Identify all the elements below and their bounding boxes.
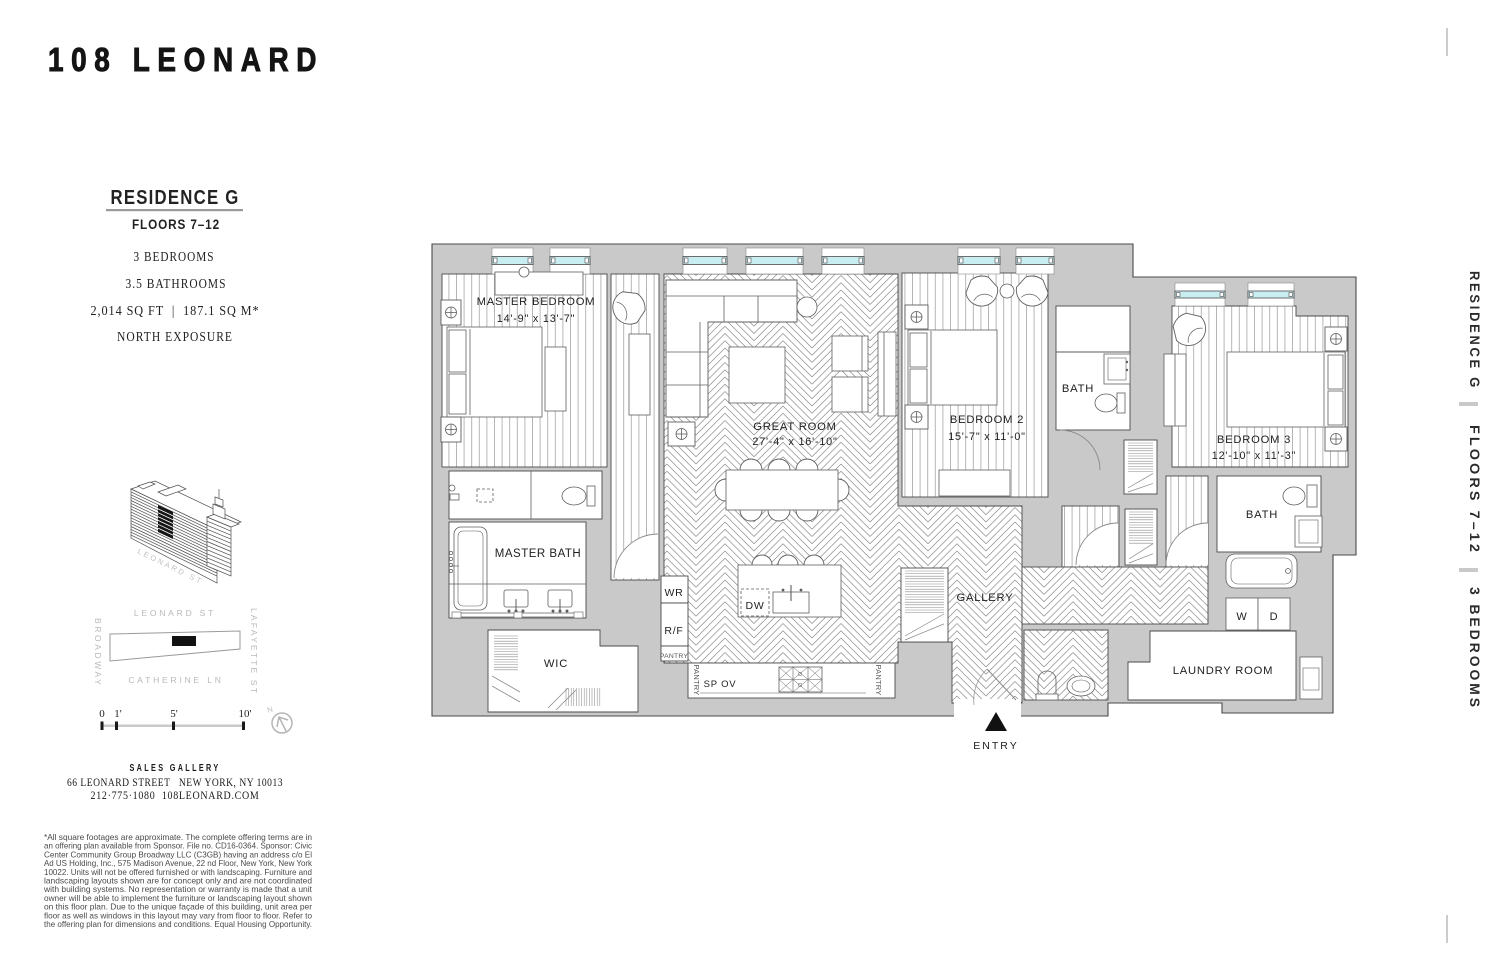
svg-text:R/F: R/F: [664, 625, 683, 637]
svg-text:NORTH EXPOSURE: NORTH EXPOSURE: [117, 329, 233, 344]
svg-text:SALES GALLERY: SALES GALLERY: [130, 762, 221, 774]
svg-text:D: D: [1270, 611, 1279, 623]
svg-text:DW: DW: [745, 600, 764, 612]
svg-text:LAUNDRY ROOM: LAUNDRY ROOM: [1173, 665, 1274, 677]
svg-text:15'-7" x 11'-0": 15'-7" x 11'-0": [948, 431, 1026, 443]
svg-text:RESIDENCE G: RESIDENCE G: [111, 186, 240, 209]
svg-text:ENTRY: ENTRY: [973, 740, 1018, 752]
svg-text:BATH: BATH: [1246, 509, 1278, 521]
svg-text:GREAT ROOM: GREAT ROOM: [753, 421, 836, 433]
svg-text:RESIDENCE G: RESIDENCE G: [1467, 271, 1483, 390]
svg-text:BROADWAY: BROADWAY: [93, 618, 103, 687]
svg-text:0: 0: [99, 708, 105, 720]
svg-text:12'-10" x 11'-3": 12'-10" x 11'-3": [1212, 450, 1296, 462]
svg-text:LAFAYETTE ST: LAFAYETTE ST: [249, 608, 259, 695]
svg-text:SP OV: SP OV: [704, 679, 737, 690]
svg-text:BEDROOM 3: BEDROOM 3: [1217, 434, 1291, 446]
svg-text:LEONARD ST: LEONARD ST: [134, 608, 216, 618]
svg-text:PANTRY: PANTRY: [692, 665, 701, 696]
svg-text:3.5 BATHROOMS: 3.5 BATHROOMS: [126, 276, 227, 291]
svg-text:212·775·1080 108LEONARD.COM: 212·775·1080 108LEONARD.COM: [91, 790, 260, 802]
svg-text:WR: WR: [664, 587, 683, 599]
svg-text:BEDROOM 2: BEDROOM 2: [950, 414, 1024, 426]
svg-text:the offering plan for dimensio: the offering plan for dimensions and con…: [44, 919, 312, 929]
svg-text:WIC: WIC: [544, 658, 568, 670]
svg-text:108 LEONARD: 108 LEONARD: [48, 41, 324, 78]
svg-text:FLOORS 7–12: FLOORS 7–12: [1467, 425, 1483, 555]
svg-text:CATHERINE LN: CATHERINE LN: [128, 675, 223, 685]
svg-text:3 BEDROOMS: 3 BEDROOMS: [134, 249, 215, 264]
svg-text:66 LEONARD STREET NEW YORK,: 66 LEONARD STREET NEW YORK, NY 10013: [67, 777, 283, 789]
svg-text:3 BEDROOMS: 3 BEDROOMS: [1467, 587, 1483, 710]
svg-text:MASTER BATH: MASTER BATH: [495, 548, 581, 560]
svg-text:1': 1': [114, 708, 122, 720]
svg-text:14'-9" x 13'-7": 14'-9" x 13'-7": [497, 313, 575, 325]
svg-text:FLOORS 7–12: FLOORS 7–12: [132, 217, 220, 232]
svg-text:PANTRY: PANTRY: [874, 665, 883, 696]
svg-text:W: W: [1236, 611, 1247, 623]
svg-text:10': 10': [239, 708, 252, 720]
svg-text:5': 5': [170, 708, 178, 720]
svg-text:2,014 SQ FT | 187.1 SQ M*: 2,014 SQ FT | 187.1 SQ M*: [91, 303, 260, 318]
svg-text:MASTER BEDROOM: MASTER BEDROOM: [477, 296, 596, 308]
svg-text:GALLERY: GALLERY: [956, 592, 1013, 604]
svg-text:27'-4" x 16'-10": 27'-4" x 16'-10": [752, 436, 837, 448]
svg-text:BATH: BATH: [1062, 383, 1094, 395]
svg-text:PANTRY: PANTRY: [660, 653, 688, 660]
